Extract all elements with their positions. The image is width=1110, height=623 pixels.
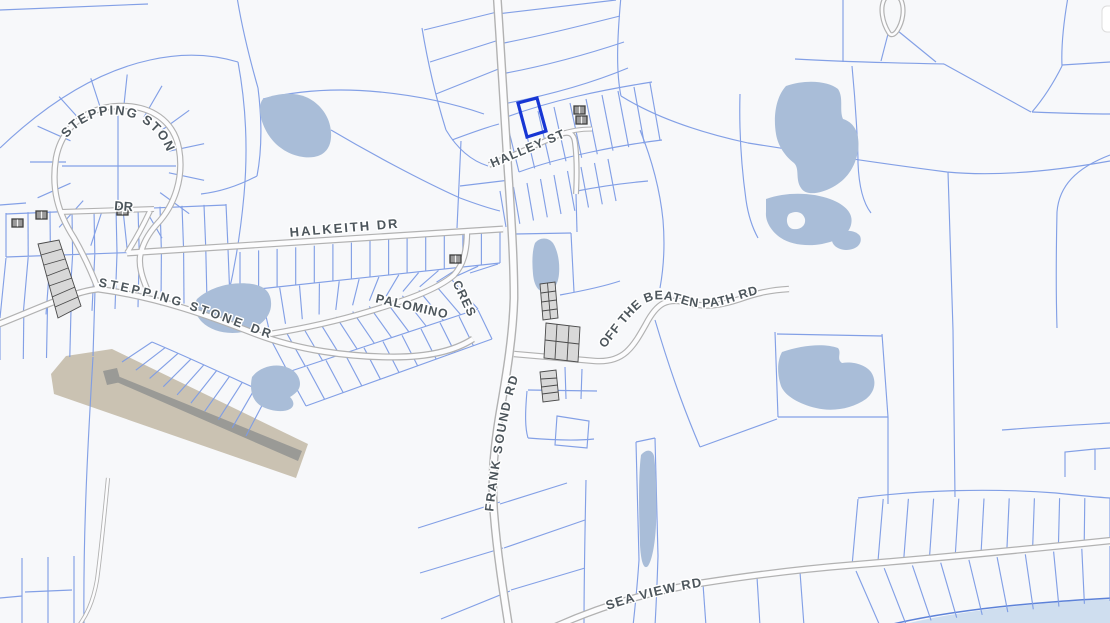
building-icon: [12, 219, 23, 227]
building-icon: [576, 116, 587, 124]
parcel-lot-line: [94, 209, 95, 253]
road-label-stepping-stone-loop-dr: DR: [114, 198, 134, 214]
strata-block: [544, 323, 580, 362]
pond-island-notch: [787, 212, 805, 229]
building-icon: [450, 255, 461, 263]
building-icon: [574, 106, 585, 114]
parcel-lot-line: [1084, 498, 1085, 544]
parcel-lot-line: [23, 314, 24, 359]
building-icon: [36, 211, 47, 219]
map-canvas[interactable]: HALLEY ST HALKEITH DR STEPPING STONE DR …: [0, 0, 1110, 623]
map-control-panel-corner[interactable]: [1102, 6, 1110, 32]
